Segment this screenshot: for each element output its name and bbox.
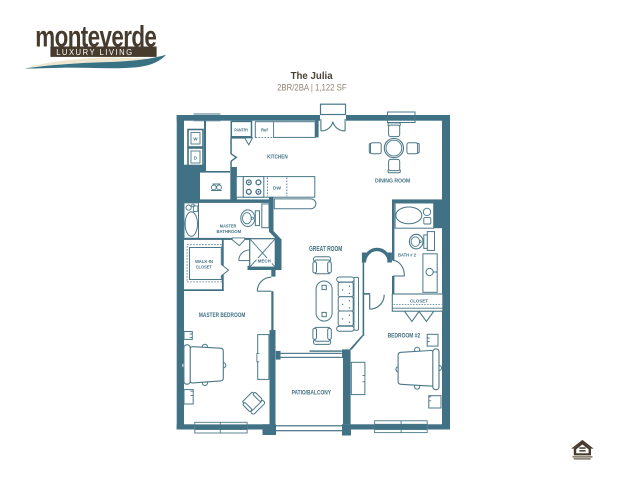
svg-text:BEDROOM #2: BEDROOM #2 — [388, 332, 421, 339]
svg-text:D: D — [194, 156, 197, 161]
svg-text:CLOSET: CLOSET — [410, 298, 428, 303]
svg-text:2BR/2BA | 1,122 SF: 2BR/2BA | 1,122 SF — [277, 82, 347, 93]
svg-text:GREAT ROOM: GREAT ROOM — [309, 246, 343, 253]
svg-text:BATHROOM: BATHROOM — [217, 229, 242, 234]
svg-text:CLOSET: CLOSET — [196, 265, 212, 270]
svg-text:PATIO/BALCONY: PATIO/BALCONY — [292, 390, 331, 396]
svg-text:WALK-IN: WALK-IN — [195, 259, 214, 264]
svg-text:PANTRY: PANTRY — [234, 127, 248, 132]
svg-text:LUXURY LIVING: LUXURY LIVING — [56, 48, 133, 57]
svg-text:MASTER: MASTER — [220, 224, 237, 229]
svg-text:Ref: Ref — [261, 128, 268, 133]
svg-text:KITCHEN: KITCHEN — [267, 154, 288, 160]
svg-text:The Julia: The Julia — [291, 71, 334, 82]
svg-text:DINING ROOM: DINING ROOM — [375, 179, 411, 185]
svg-text:MASTER BEDROOM: MASTER BEDROOM — [199, 313, 246, 319]
svg-text:DW: DW — [273, 186, 282, 191]
svg-text:BATH # 2: BATH # 2 — [398, 253, 417, 258]
svg-text:MECH: MECH — [258, 259, 271, 264]
